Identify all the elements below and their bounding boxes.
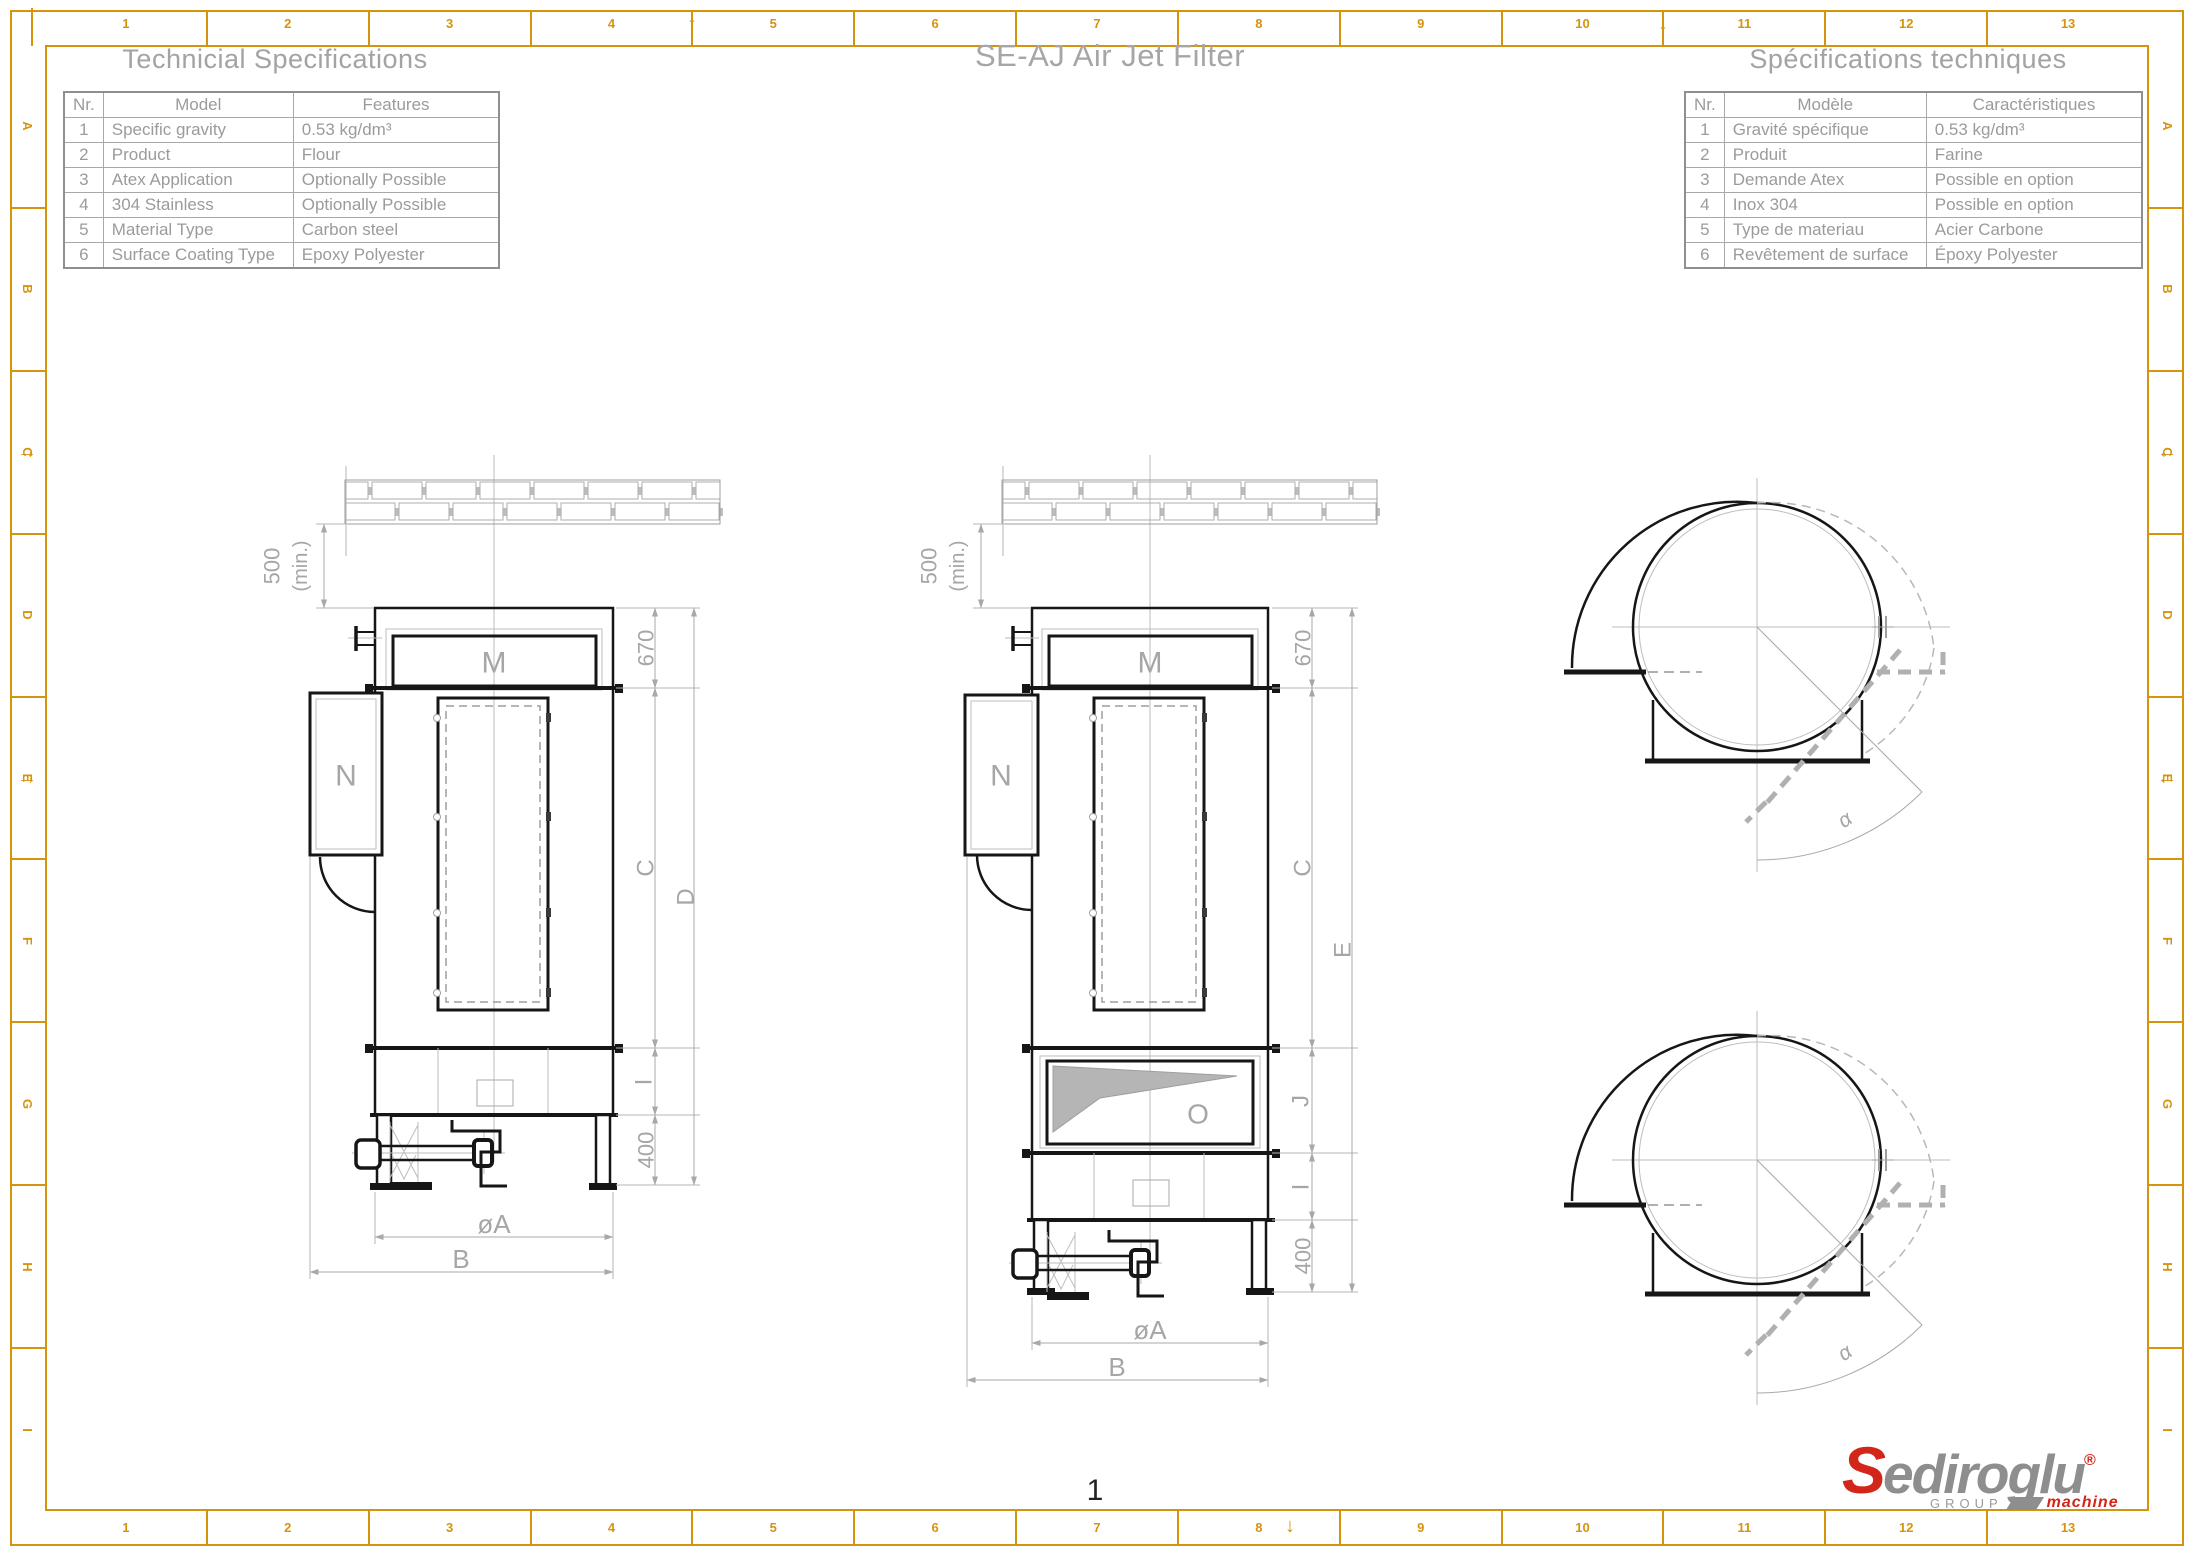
table-cell: Produit — [1724, 143, 1926, 168]
table-cell: 3 — [64, 168, 103, 193]
dim-400: 400 — [634, 1132, 659, 1169]
ruler-row-label: F — [20, 929, 34, 953]
front-view-right: 500 (min.) M N — [905, 452, 1367, 1397]
logo-initial: S — [1842, 1433, 1883, 1507]
ruler-column-label: 4 — [599, 17, 623, 31]
ruler-tick — [530, 12, 532, 45]
table-cell: 4 — [1685, 193, 1724, 218]
table-header-row: Nr.ModèleCaractéristiques — [1685, 92, 2142, 118]
ruler-column-label: 5 — [761, 17, 785, 31]
label-o: O — [1187, 1099, 1209, 1130]
dim-i: I — [631, 1079, 658, 1086]
company-logo: Sediroglu® GROUP machine — [1842, 1432, 2152, 1524]
ruler-row-label: I — [2160, 1418, 2174, 1442]
table-cell: 0.53 kg/dm³ — [1926, 118, 2142, 143]
table-cell: 1 — [64, 118, 103, 143]
table-row: 5Type de materiauAcier Carbone — [1685, 218, 2142, 243]
ruler-tick — [2149, 1347, 2182, 1349]
dimensions-right: 670 C I 400 D — [616, 608, 700, 1185]
table-title-french: Spécifications techniques — [1684, 44, 2132, 75]
dimension-clearance: 500 (min.) — [260, 524, 374, 608]
table-cell: 6 — [64, 243, 103, 269]
ruler-column-label: 1 — [114, 1521, 138, 1535]
table-row: 6Revêtement de surfaceÉpoxy Polyester — [1685, 243, 2142, 269]
ruler-tick — [2149, 533, 2182, 535]
table-cell: Acier Carbone — [1926, 218, 2142, 243]
column-header: Nr. — [1685, 92, 1724, 118]
dimensions-right: 670 C J I 400 E — [1272, 608, 1358, 1292]
logo-group-text: GROUP — [1930, 1496, 2003, 1511]
table-cell: Gravité spécifique — [1724, 118, 1926, 143]
table-cell: 304 Stainless — [103, 193, 293, 218]
ruler-tick — [368, 1511, 370, 1544]
spec-table-french: Nr.ModèleCaractéristiques 1Gravité spéci… — [1684, 91, 2143, 269]
dim-b: B — [452, 1244, 469, 1274]
ruler-row-label: H — [20, 1255, 34, 1279]
dim-b: B — [1108, 1352, 1125, 1382]
table-cell: Possible en option — [1926, 168, 2142, 193]
ruler-tick — [368, 12, 370, 45]
ruler-row-label: H — [2160, 1255, 2174, 1279]
ruler-column-label: 3 — [438, 17, 462, 31]
ruler-tick — [1501, 12, 1503, 45]
table-cell: 2 — [1685, 143, 1724, 168]
table-cell: 5 — [64, 218, 103, 243]
ruler-tick — [1986, 12, 1988, 45]
ruler-column-label: 10 — [1571, 17, 1595, 31]
ruler-row-label: D — [2160, 603, 2174, 627]
table-cell: 5 — [1685, 218, 1724, 243]
top-views: α — [1540, 455, 2010, 1425]
table-row: 1Gravité spécifique0.53 kg/dm³ — [1685, 118, 2142, 143]
table-cell: Carbon steel — [293, 218, 499, 243]
ruler-column-label: 13 — [2056, 17, 2080, 31]
dim-400: 400 — [1291, 1238, 1316, 1275]
ruler-row-label: A — [2160, 114, 2174, 138]
dim-670: 670 — [1291, 630, 1316, 667]
ruler-tick — [1662, 1511, 1664, 1544]
ruler-tick — [2149, 696, 2182, 698]
ruler-tick — [2149, 370, 2182, 372]
ruler-column-label: 2 — [276, 1521, 300, 1535]
page-title: SE-AJ Air Jet Filter — [840, 38, 1380, 74]
dim-e: E — [1330, 942, 1357, 958]
ceiling-slab — [345, 480, 723, 524]
fold-mark-icon: → — [14, 442, 40, 462]
logo-machine-text: machine — [2047, 1494, 2119, 1512]
table-row: 2ProduitFarine — [1685, 143, 2142, 168]
dim-diameter-a: øA — [1133, 1315, 1167, 1345]
logo-swoosh-icon — [2006, 1497, 2044, 1510]
front-view-left: 500 (min.) M N — [248, 452, 708, 1297]
table-cell: Surface Coating Type — [103, 243, 293, 269]
table-row: 1Specific gravity0.53 kg/dm³ — [64, 118, 499, 143]
column-header: Features — [293, 92, 499, 118]
fold-mark-icon: ↓ — [1280, 1516, 1300, 1536]
table-cell: Revêtement de surface — [1724, 243, 1926, 269]
table-cell: Type de materiau — [1724, 218, 1926, 243]
ruler-tick — [12, 858, 45, 860]
fold-mark-icon: → — [14, 768, 40, 788]
ruler-tick — [12, 533, 45, 535]
ruler-row-label: B — [2160, 277, 2174, 301]
fold-mark-icon: ← — [2154, 768, 2180, 788]
registered-mark-icon: ® — [2084, 1452, 2096, 1469]
table-cell: Product — [103, 143, 293, 168]
table-cell: Farine — [1926, 143, 2142, 168]
ruler-row-label: D — [20, 603, 34, 627]
table-cell: Demande Atex — [1724, 168, 1926, 193]
ruler-row-label: G — [2160, 1092, 2174, 1116]
column-header: Caractéristiques — [1926, 92, 2142, 118]
ruler-tick — [12, 1021, 45, 1023]
ruler-column-label: 6 — [923, 17, 947, 31]
ruler-column-label: 1 — [114, 17, 138, 31]
table-row: 2ProductFlour — [64, 143, 499, 168]
dimension-clearance: 500 (min.) — [917, 524, 1031, 608]
alternate-position-ghost — [1746, 502, 1945, 822]
top-view: α — [1564, 478, 1950, 872]
dim-angle: α — [1833, 807, 1857, 833]
table-cell: Optionally Possible — [293, 193, 499, 218]
ruler-tick — [206, 1511, 208, 1544]
ruler-tick — [12, 1347, 45, 1349]
ruler-column-label: 6 — [923, 1521, 947, 1535]
label-n: N — [335, 760, 357, 793]
ruler-column-label: 12 — [1894, 17, 1918, 31]
ruler-row-label: I — [20, 1418, 34, 1442]
table-title-english: Technicial Specifications — [63, 44, 487, 75]
ruler-column-label: 11 — [1732, 17, 1756, 31]
ruler-row-label: G — [20, 1092, 34, 1116]
ruler-column-label: 5 — [761, 1521, 785, 1535]
dim-i: I — [1288, 1184, 1315, 1191]
table-cell: Material Type — [103, 218, 293, 243]
ruler-tick — [12, 696, 45, 698]
ruler-tick — [530, 1511, 532, 1544]
angle-dimension: α — [1757, 627, 1922, 860]
label-n: N — [990, 760, 1012, 793]
fan-volute — [1572, 502, 1757, 668]
table-cell: 2 — [64, 143, 103, 168]
table-cell: 0.53 kg/dm³ — [293, 118, 499, 143]
ruler-column-label: 9 — [1409, 1521, 1433, 1535]
table-cell: 3 — [1685, 168, 1724, 193]
ruler-tick — [853, 1511, 855, 1544]
table-row: 6Surface Coating TypeEpoxy Polyester — [64, 243, 499, 269]
dim-c: C — [1290, 859, 1317, 876]
fold-mark-icon: ← — [2154, 442, 2180, 462]
ruler-tick — [1501, 1511, 1503, 1544]
table-cell: Optionally Possible — [293, 168, 499, 193]
ruler-tick — [1177, 1511, 1179, 1544]
table-row: 4304 StainlessOptionally Possible — [64, 193, 499, 218]
table-cell: Inox 304 — [1724, 193, 1926, 218]
dim-500-note: (min.) — [290, 540, 312, 591]
ruler-column-label: 7 — [1085, 1521, 1109, 1535]
ruler-tick — [2149, 1184, 2182, 1186]
table-cell: Atex Application — [103, 168, 293, 193]
table-cell: Époxy Polyester — [1926, 243, 2142, 269]
discharge-assembly — [352, 1120, 507, 1190]
ceiling-slab — [1002, 480, 1380, 524]
column-header: Modèle — [1724, 92, 1926, 118]
ruler-column-label: 4 — [599, 1521, 623, 1535]
label-m: M — [1138, 647, 1163, 680]
ruler-column-label: 10 — [1571, 1521, 1595, 1535]
ruler-column-label: 3 — [438, 1521, 462, 1535]
ruler-tick — [12, 1184, 45, 1186]
ruler-tick — [2149, 1021, 2182, 1023]
fold-mark-icon: ↑ — [682, 14, 702, 34]
drawing-sheet: 1122334455667788991010111112121313AABBCC… — [0, 0, 2194, 1556]
ruler-tick — [2149, 207, 2182, 209]
table-cell: Flour — [293, 143, 499, 168]
table-cell: Possible en option — [1926, 193, 2142, 218]
ruler-row-label: A — [20, 114, 34, 138]
ruler-column-label: 9 — [1409, 17, 1433, 31]
column-header: Model — [103, 92, 293, 118]
ruler-row-label: B — [20, 277, 34, 301]
table-row: 4Inox 304Possible en option — [1685, 193, 2142, 218]
table-cell: 4 — [64, 193, 103, 218]
dim-d: D — [673, 888, 700, 905]
dim-500-note: (min.) — [947, 540, 969, 591]
table-cell: Epoxy Polyester — [293, 243, 499, 269]
table-row: 5Material TypeCarbon steel — [64, 218, 499, 243]
ruler-tick — [1015, 1511, 1017, 1544]
ruler-column-label: 8 — [1247, 1521, 1271, 1535]
column-header: Nr. — [64, 92, 103, 118]
table-header-row: Nr.ModelFeatures — [64, 92, 499, 118]
page-number: 1 — [1060, 1474, 1130, 1508]
dim-670: 670 — [634, 630, 659, 667]
table-cell: 1 — [1685, 118, 1724, 143]
label-m: M — [482, 647, 507, 680]
ruler-column-label: 7 — [1085, 17, 1109, 31]
dim-j: J — [1288, 1095, 1315, 1107]
ruler-tick — [12, 370, 45, 372]
ruler-column-label: 11 — [1732, 1521, 1756, 1535]
ruler-tick — [12, 207, 45, 209]
ruler-tick — [1824, 12, 1826, 45]
ruler-tick — [1339, 1511, 1341, 1544]
ruler-column-label: 2 — [276, 17, 300, 31]
spec-table-english: Nr.ModelFeatures 1Specific gravity0.53 k… — [63, 91, 500, 269]
ruler-tick — [691, 1511, 693, 1544]
ruler-tick — [1824, 1511, 1826, 1544]
fan-housing: N — [965, 695, 1038, 910]
dim-500: 500 — [260, 548, 285, 585]
side-fitting — [1872, 616, 1894, 638]
table-row: 3Atex ApplicationOptionally Possible — [64, 168, 499, 193]
dim-c: C — [633, 859, 660, 876]
table-cell: 6 — [1685, 243, 1724, 269]
ruler-tick — [2149, 858, 2182, 860]
dim-500: 500 — [917, 548, 942, 585]
fold-mark-icon: ↓ — [1653, 14, 1673, 34]
dim-diameter-a: øA — [477, 1209, 511, 1239]
fan-housing: N — [310, 693, 382, 912]
ruler-tick — [206, 12, 208, 45]
table-cell: Specific gravity — [103, 118, 293, 143]
ruler-row-label: F — [2160, 929, 2174, 953]
table-row: 3Demande AtexPossible en option — [1685, 168, 2142, 193]
ruler-column-label: 8 — [1247, 17, 1271, 31]
corner-trim-mark — [31, 8, 33, 46]
